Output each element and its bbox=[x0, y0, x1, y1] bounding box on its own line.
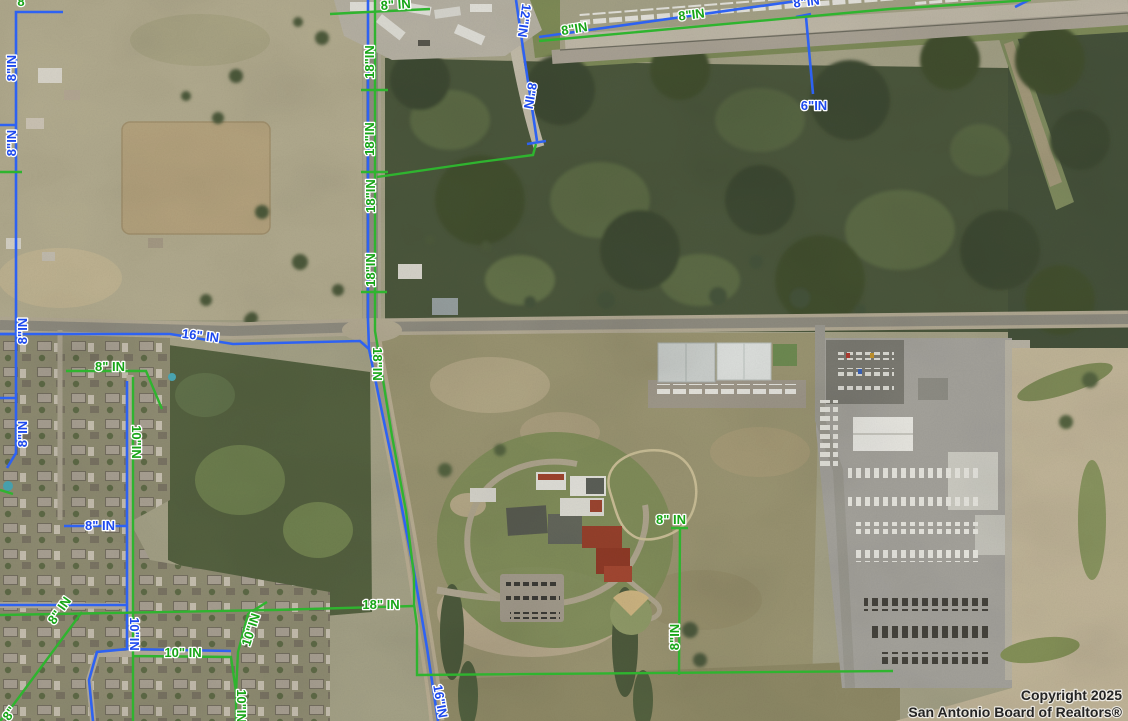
pipe-size-label-blue: 8" IN bbox=[85, 518, 115, 533]
satellite-map-canvas[interactable]: 8"IN8"IN8"IN8"IN8" IN10"IN16" IN16"IN12"… bbox=[0, 0, 1128, 721]
pipe-size-label-green: 18"IN bbox=[370, 347, 385, 381]
pipe-size-label-green: 8" IN bbox=[380, 0, 411, 13]
pipe-size-label-green: 10"IN bbox=[129, 425, 144, 459]
pipe-size-label-blue: 8"IN bbox=[4, 130, 19, 156]
pipe-size-label-green: 8 bbox=[17, 0, 24, 9]
pipe-size-label-blue: 8"IN bbox=[15, 318, 30, 344]
pipe-size-label-green: 18"IN bbox=[363, 179, 378, 213]
copyright-line-1: Copyright 2025 bbox=[1021, 687, 1122, 703]
pipe-size-label-green: 10" IN bbox=[164, 645, 201, 660]
copyright-line-2: San Antonio Board of Realtors® bbox=[908, 704, 1122, 720]
pipe-size-label-green: 18"IN bbox=[363, 253, 378, 287]
pipe-size-label-green: 18" IN bbox=[362, 597, 399, 612]
pipe-size-label-blue: 8"IN bbox=[15, 421, 30, 447]
pipe-size-label-blue: 10"IN bbox=[127, 617, 142, 651]
pipe-size-label-blue: 6"IN bbox=[801, 98, 827, 113]
pipe-size-label-green: 8"IN bbox=[667, 624, 682, 650]
pipe-size-label-green: 8" IN bbox=[656, 512, 686, 527]
pipe-size-label-green: 8"IN bbox=[677, 5, 705, 23]
pipe-size-label-green: 10"IN bbox=[234, 689, 249, 721]
aerial-map-view[interactable]: 8"IN8"IN8"IN8"IN8" IN10"IN16" IN16"IN12"… bbox=[0, 0, 1128, 721]
pipe-size-label-green: 8" IN bbox=[95, 359, 125, 374]
pipe-size-label-green: 18"IN bbox=[362, 122, 377, 156]
pipe-size-label-green: 18"IN bbox=[362, 45, 377, 79]
pipe-size-label-blue: 8"IN bbox=[4, 55, 19, 81]
